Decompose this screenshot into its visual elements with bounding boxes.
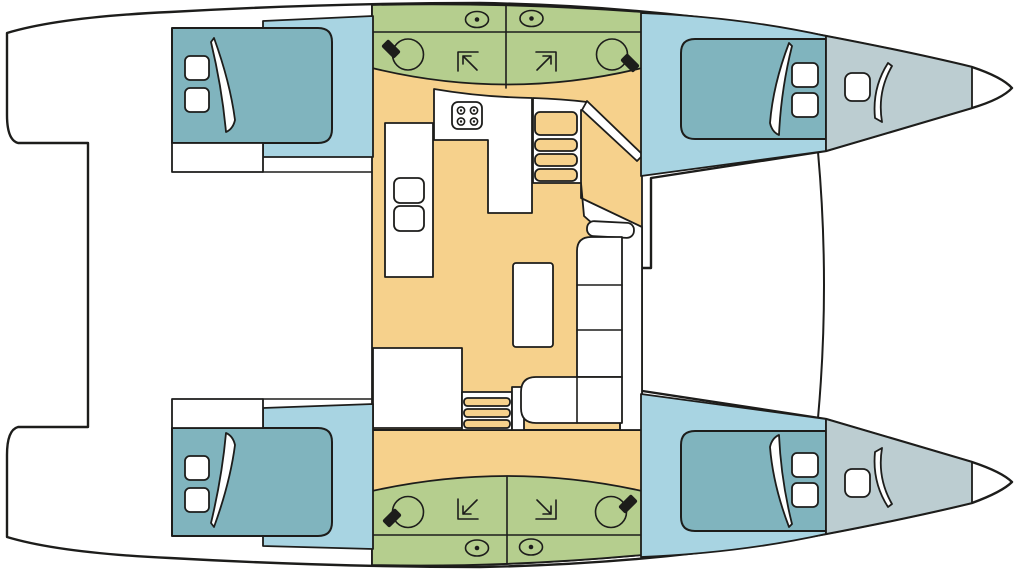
stair-tread	[535, 154, 577, 166]
port-heads	[372, 4, 642, 88]
bed-pillow	[185, 456, 209, 480]
stove-icon	[452, 102, 482, 129]
bow-crossbeam	[818, 152, 824, 418]
starboard-companionway	[462, 387, 524, 430]
settee-side-run	[577, 237, 622, 377]
cabin-floor-step	[172, 143, 263, 172]
stair-tread	[535, 139, 577, 151]
double-berth	[681, 431, 826, 531]
starboard-forward-cabin	[641, 394, 826, 557]
galley-sink	[394, 206, 424, 231]
stair-tread	[464, 398, 510, 406]
port-heads-floor	[372, 4, 642, 84]
double-berth	[172, 28, 332, 143]
double-berth	[681, 39, 826, 139]
port-forward-cabin	[641, 13, 826, 176]
saloon-table	[513, 263, 553, 347]
settee-back-cushion	[587, 221, 635, 238]
bow-hatch	[845, 469, 870, 497]
port-aft-cabin	[172, 16, 373, 172]
bed-pillow	[792, 93, 818, 117]
bed-pillow	[185, 56, 209, 80]
galley-sink	[394, 178, 424, 203]
bed-pillow	[792, 63, 818, 87]
double-berth	[172, 428, 332, 536]
stair-tread	[535, 112, 577, 135]
stair-tread	[464, 420, 510, 428]
bow-hatch	[845, 73, 870, 101]
bed-pillow	[185, 488, 209, 512]
catamaran-floor-plan	[0, 0, 1024, 570]
starboard-heads	[372, 476, 642, 566]
cabin-floor-step	[172, 399, 263, 428]
port-bow-locker	[826, 36, 972, 151]
stair-tread	[464, 409, 510, 417]
bed-pillow	[792, 453, 818, 477]
bed-pillow	[185, 88, 209, 112]
floor-plan-svg	[0, 0, 1024, 570]
nav-desk	[373, 348, 462, 428]
starboard-bow-locker	[826, 419, 972, 534]
bed-pillow	[792, 483, 818, 507]
starboard-aft-cabin	[172, 399, 373, 549]
stair-tread	[535, 169, 577, 181]
settee-front-run	[521, 377, 622, 423]
